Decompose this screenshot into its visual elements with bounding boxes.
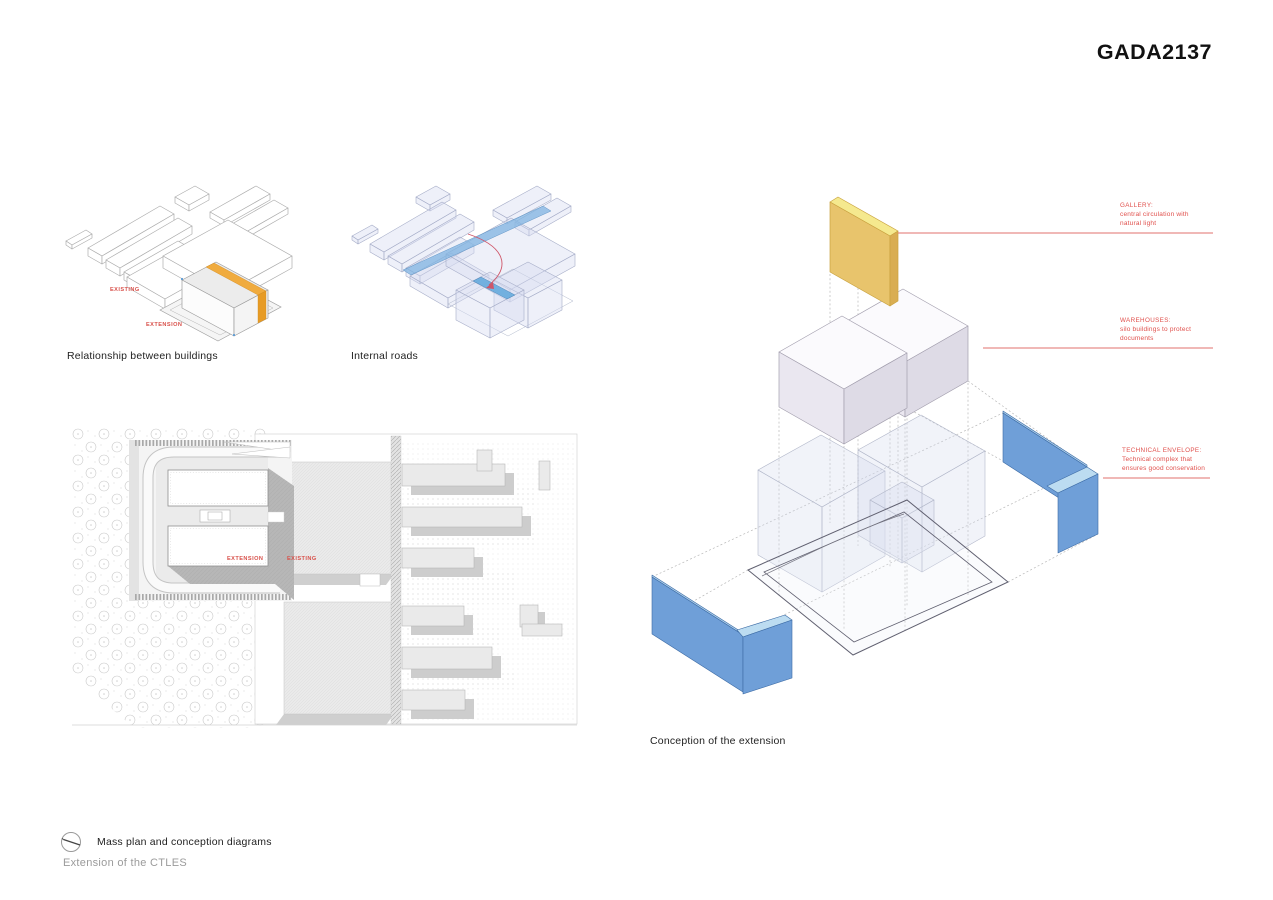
annotation-technical-heading: TECHNICAL ENVELOPE: <box>1122 447 1202 454</box>
project-code: GADA2137 <box>1097 40 1212 65</box>
caption-internal-roads: Internal roads <box>351 350 418 362</box>
vertical-road-strip <box>391 436 401 724</box>
diagram-site-plan <box>72 428 580 728</box>
annotation-gallery: GALLERY: central circulation with natura… <box>1120 201 1204 228</box>
annotation-warehouses-body: silo buildings to protect documents <box>1120 326 1191 342</box>
north-arrow-icon <box>59 830 85 856</box>
label-existing-plan: EXISTING <box>287 556 317 562</box>
label-extension-axon: EXTENSION <box>146 322 182 328</box>
diagram-internal-roads <box>348 184 578 346</box>
gallery-slab <box>830 197 898 306</box>
caption-conception: Conception of the extension <box>650 735 786 747</box>
technical-envelope-wall-right <box>1003 411 1098 553</box>
technical-envelope-wall-left <box>652 575 792 694</box>
gallery-stripe-side <box>258 291 266 323</box>
corner-marker <box>233 334 235 336</box>
warehouse-boxes <box>779 289 968 444</box>
caption-relationship: Relationship between buildings <box>67 350 218 362</box>
project-name: Extension of the CTLES <box>63 857 187 869</box>
extension-plot <box>129 440 294 601</box>
annotation-gallery-body: central circulation with natural light <box>1120 211 1189 227</box>
label-existing-axon: EXISTING <box>110 287 140 293</box>
annotation-technical: TECHNICAL ENVELOPE: Technical complex th… <box>1122 446 1218 473</box>
label-extension-plan: EXTENSION <box>227 556 263 562</box>
annotation-gallery-heading: GALLERY: <box>1120 202 1153 209</box>
site-plan-drawing <box>72 428 580 728</box>
annotation-warehouses-heading: WAREHOUSES: <box>1120 317 1171 324</box>
north-arrow-drawing <box>59 830 85 856</box>
annotation-warehouses: WAREHOUSES: silo buildings to protect do… <box>1120 316 1208 343</box>
internal-roads-axon-drawing <box>348 184 578 346</box>
connector-road <box>268 512 284 522</box>
sheet-subtitle: Mass plan and conception diagrams <box>97 836 272 848</box>
presentation-board: GADA2137 <box>0 0 1273 900</box>
annotation-technical-body: Technical complex that ensures good cons… <box>1122 456 1205 472</box>
corner-marker <box>181 278 183 280</box>
